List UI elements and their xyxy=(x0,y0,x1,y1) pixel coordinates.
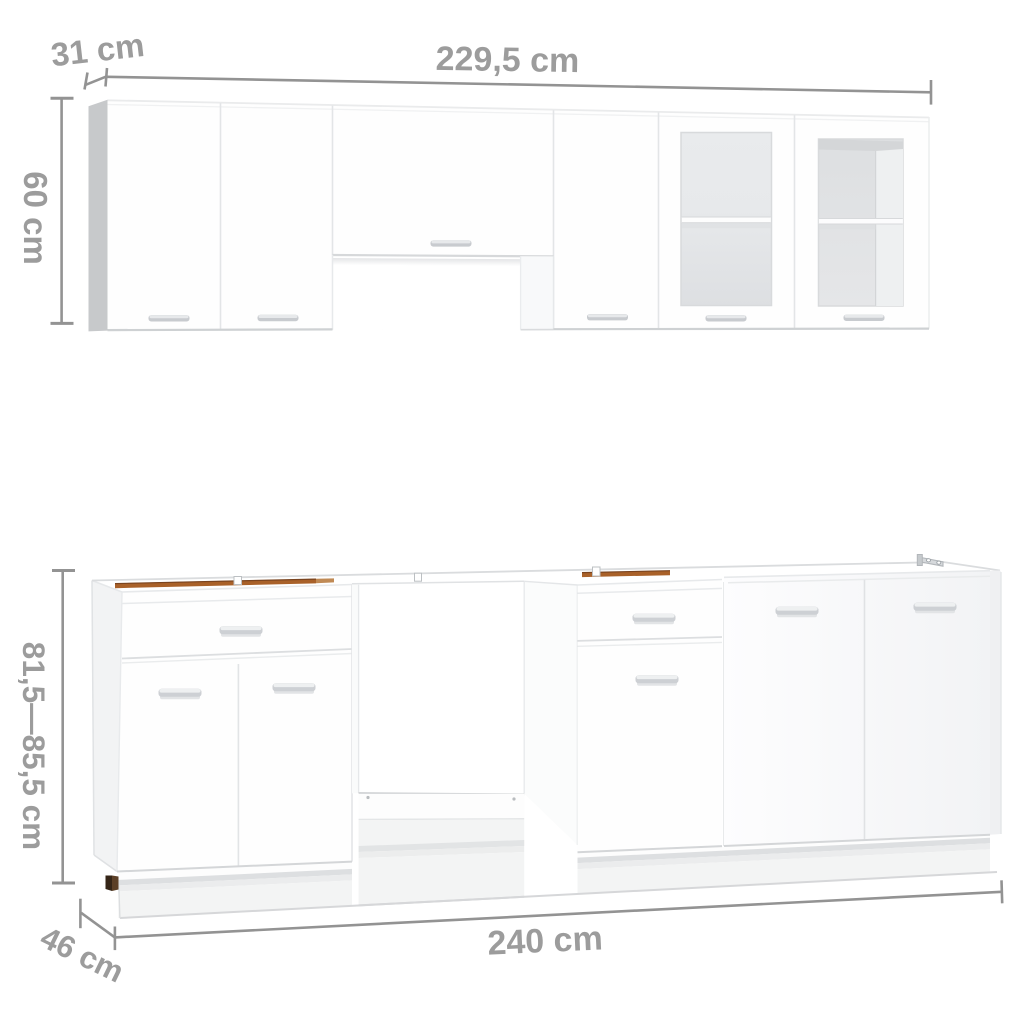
svg-text:60 cm: 60 cm xyxy=(17,171,54,265)
svg-text:229,5 cm: 229,5 cm xyxy=(435,40,579,80)
svg-text:31 cm: 31 cm xyxy=(49,26,146,73)
svg-text:240 cm: 240 cm xyxy=(487,919,604,962)
svg-text:81,5—85,5 cm: 81,5—85,5 cm xyxy=(16,642,52,850)
